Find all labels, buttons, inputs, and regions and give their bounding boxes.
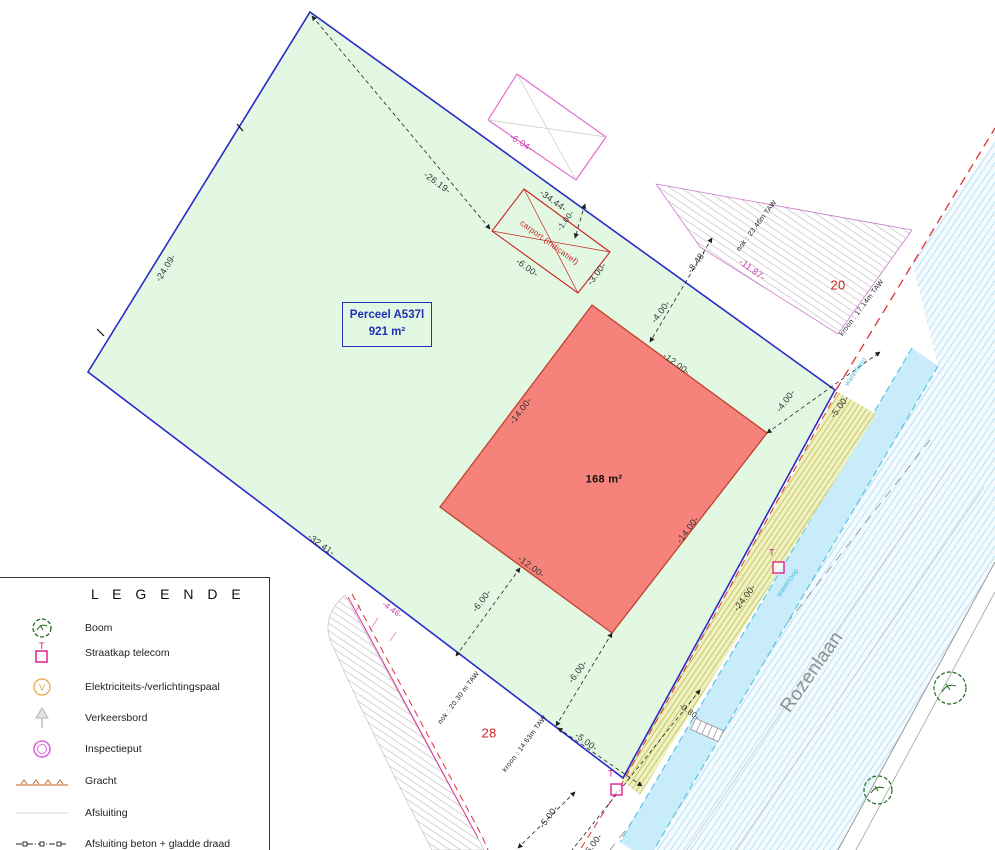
tree-icon (0, 616, 85, 640)
legend-item-label: Afsluiting beton + gladde draad (85, 838, 230, 850)
boundary-marker (97, 329, 104, 336)
legend-item-label: Boom (85, 622, 112, 634)
legend-item-label: Elektriciteits-/verlichtingspaal (85, 681, 220, 693)
legend-item-verkeersbord: Verkeersbord (0, 707, 269, 729)
legend-item-afsluiting-beton: Afsluiting beton + gladde draad (0, 833, 269, 850)
parcel-id: Perceel A537l (345, 307, 429, 324)
electricity-pole-icon: V (0, 676, 85, 698)
legend-item-inspectieput: Inspectieput (0, 738, 269, 760)
legend-item-label: Verkeersbord (85, 712, 147, 724)
telecom-cover-icon (773, 562, 784, 573)
ditch-icon (0, 772, 85, 790)
site-plan: -24.09--26.19--34.44--6.00--3.00--1.00--… (0, 0, 995, 850)
legend-item-straatkap: T Straatkap telecom (0, 642, 269, 664)
legend-item-afsluiting: Afsluiting (0, 802, 269, 824)
traffic-sign-icon (0, 706, 85, 730)
legend-panel: L E G E N D E Boom T Straatkap telecom V… (0, 577, 270, 850)
legend-item-label: Inspectieput (85, 743, 142, 755)
legend-item-label: Afsluiting (85, 807, 128, 819)
legend-item-elektriciteitspaal: V Elektriciteits-/verlichtingspaal (0, 676, 269, 698)
svg-text:T: T (39, 641, 45, 651)
legend-item-gracht: Gracht (0, 770, 269, 792)
legend-item-label: Gracht (85, 775, 117, 787)
svg-text:V: V (39, 683, 45, 693)
concrete-fence-icon (0, 838, 85, 850)
legend-title: L E G E N D E (91, 586, 246, 602)
telecom-cover-icon (611, 784, 622, 795)
telecom-cover-icon: T (0, 640, 85, 666)
fence-icon (0, 807, 85, 819)
inspection-pit-icon (0, 738, 85, 760)
legend-item-boom: Boom (0, 617, 269, 639)
parcel-info-box: Perceel A537l 921 m² (342, 302, 432, 347)
legend-item-label: Straatkap telecom (85, 647, 170, 659)
tree-icon (934, 672, 966, 704)
parcel-area: 921 m² (345, 324, 429, 341)
